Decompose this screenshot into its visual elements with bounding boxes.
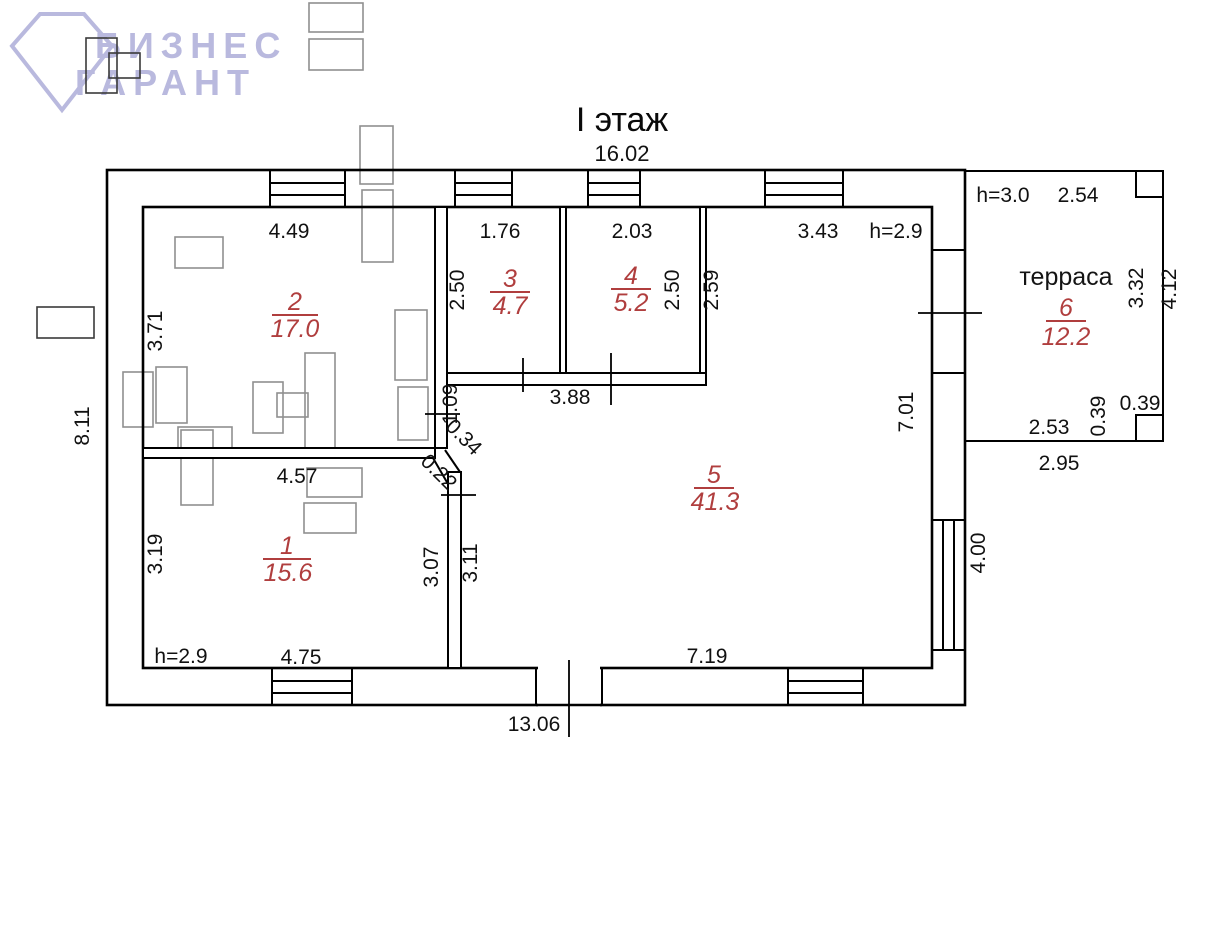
room-label-5: 5 41.3 (691, 461, 740, 516)
room3-number: 3 (503, 265, 517, 293)
logo-line2: ГАРАНТ (75, 62, 256, 103)
terrace-pillar (1136, 415, 1163, 441)
outer-wall (107, 170, 965, 705)
room5-number: 5 (707, 461, 721, 489)
bottom-wall-openings (272, 666, 863, 707)
furniture-rect (175, 237, 223, 268)
dim-room1-height: 3.19 (144, 534, 167, 575)
furniture-rect (362, 190, 393, 262)
furniture-rect (181, 430, 213, 505)
dim-room5-bottom-width: 7.19 (687, 645, 728, 668)
terrace-pillar (1136, 171, 1163, 197)
furniture-rect (123, 372, 153, 427)
room4-number: 4 (624, 262, 638, 290)
furniture-rect (277, 393, 308, 417)
dim-room5-height: 7.01 (895, 392, 918, 433)
dim-room2-width: 4.49 (269, 220, 310, 243)
furniture-rect (253, 382, 283, 433)
room6-number: 6 (1059, 294, 1073, 322)
room5-area: 41.3 (691, 488, 740, 516)
room-label-2: 2 17.0 (271, 288, 320, 343)
note-room1-height: h=2.9 (154, 645, 207, 668)
furniture-rect (37, 307, 94, 338)
dim-room4-height: 2.50 (661, 270, 684, 311)
dim-terrace-bottom-inner: 2.53 (1029, 416, 1070, 439)
logo-line1: БИЗНЕС (95, 25, 287, 66)
dim-corridor-height: 2.59 (700, 270, 723, 311)
room2-number: 2 (287, 288, 302, 316)
furniture-rect (398, 387, 428, 440)
furniture-rect (309, 39, 363, 70)
room1-area: 15.6 (264, 559, 313, 587)
dim-bottom-total: 13.06 (508, 713, 561, 736)
dim-pillar-height: 0.39 (1087, 396, 1110, 437)
room3-area: 4.7 (493, 292, 529, 320)
room2-area: 17.0 (271, 315, 320, 343)
perimeter-walls (107, 170, 965, 705)
wall-rooms34-bottom (447, 373, 706, 385)
dim-room3-width: 1.76 (480, 220, 521, 243)
room-label-3: 3 4.7 (490, 265, 530, 320)
window-symbol (270, 170, 345, 207)
wall-room3-room4 (560, 207, 566, 373)
dim-room2-height: 3.71 (144, 311, 167, 352)
wall-room2-bottom (143, 448, 435, 458)
room-label-1: 1 15.6 (263, 532, 312, 587)
dim-terrace-inner-height: 3.32 (1125, 268, 1148, 309)
dim-room1-width: 4.57 (277, 465, 318, 488)
dim-rooms34-width: 3.88 (550, 386, 591, 409)
window-symbol (272, 668, 352, 705)
dim-room5-left-height: 3.11 (459, 543, 482, 582)
dim-pillar-width: 0.39 (1120, 392, 1161, 415)
room1-number: 1 (280, 532, 294, 560)
dim-room3-height: 2.50 (446, 270, 469, 311)
room-label-4: 4 5.2 (611, 262, 651, 317)
logo: БИЗНЕС ГАРАНТ (12, 14, 287, 110)
dim-top-right-width: 3.43 (798, 220, 839, 243)
furniture-rect (305, 353, 335, 453)
dim-room4-width: 2.03 (612, 220, 653, 243)
inner-wall (143, 207, 932, 668)
furniture-rect (156, 367, 187, 423)
furniture-rect (395, 310, 427, 380)
note-ceiling-height: h=2.9 (869, 220, 922, 243)
dim-left-total: 8.11 (71, 406, 94, 445)
furniture-rect (309, 3, 363, 32)
window-symbol (588, 170, 640, 207)
dim-top-total: 16.02 (594, 141, 649, 166)
window-symbol (765, 170, 843, 207)
furniture-rect (304, 503, 356, 533)
room6-area: 12.2 (1042, 323, 1091, 351)
dim-room1-bottom-width: 4.75 (281, 646, 322, 669)
window-symbol (932, 520, 965, 650)
floor-plan-page: БИЗНЕС ГАРАНТ (0, 0, 1220, 939)
window-symbol (788, 668, 863, 705)
dim-terrace-bottom-outer: 2.95 (1039, 452, 1080, 475)
room-label-6: терраса 6 12.2 (1019, 263, 1112, 351)
right-wall-openings (918, 250, 982, 650)
floor-plan-drawing: БИЗНЕС ГАРАНТ (0, 0, 1220, 939)
dim-terrace-top-width: 2.54 (1058, 184, 1099, 207)
furniture-rect (360, 126, 393, 184)
window-symbol (455, 170, 512, 207)
note-terrace-height: h=3.0 (976, 184, 1029, 207)
interior-walls (143, 207, 706, 668)
page-title: I этаж (576, 101, 669, 139)
top-wall-windows (270, 170, 843, 207)
dim-terrace-outer-height: 4.12 (1158, 269, 1181, 310)
room4-area: 5.2 (614, 289, 649, 317)
terrace-name: терраса (1019, 263, 1112, 291)
dim-right-window: 4.00 (967, 533, 990, 574)
dim-room1-right-height: 3.07 (420, 547, 443, 588)
